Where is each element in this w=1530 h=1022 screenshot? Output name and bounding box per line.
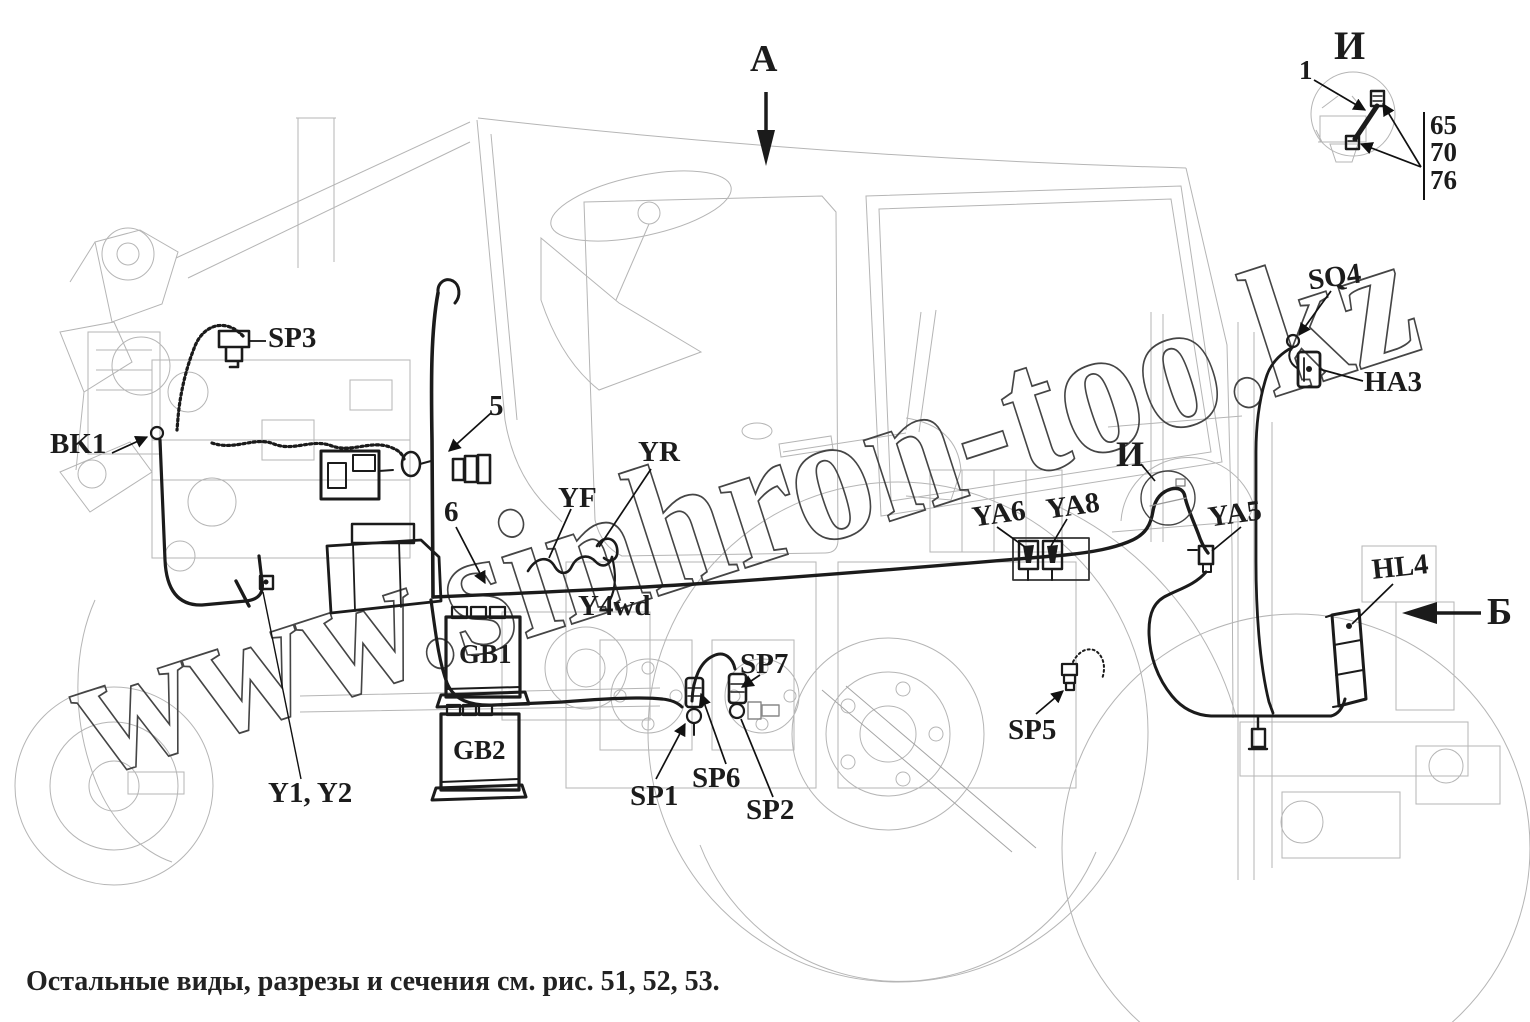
label-sp6: SP6 [692,764,740,793]
label-sp1: SP1 [630,782,678,811]
label-sq4: SQ4 [1306,259,1363,295]
detail-i-harness [1346,91,1384,149]
relay-box [321,451,393,499]
hl4-taillight [1326,610,1366,707]
label-6: 6 [444,498,459,527]
diagram-canvas: www.sinhron-too.kz [0,0,1530,1022]
label-y1-y2: Y1, Y2 [268,779,352,808]
label-yr: YR [638,438,680,467]
connector-oval [402,452,420,476]
sp7-sp2-sensors [729,674,779,719]
detail-ref-76: 76 [1430,167,1457,194]
label-sp3: SP3 [268,324,316,353]
detail-title: И [1334,26,1365,66]
label-sp2: SP2 [746,796,794,825]
figure-caption: Остальные виды, разрезы и сечения см. ри… [26,966,720,998]
label-ya5: YA5 [1206,496,1263,532]
detail-ref-70: 70 [1430,139,1457,166]
view-arrow-b [1402,602,1481,624]
detail-callout-1: 1 [1299,57,1313,84]
sp3-sensor [177,325,249,430]
view-label-b: Б [1487,593,1512,631]
label-y4wd: Y4wd [578,592,651,621]
label-yf: YF [558,484,597,513]
view-label-a: А [750,40,777,78]
label-5: 5 [489,392,504,421]
label-gb2: GB2 [453,737,506,764]
label-section-i: И [1116,436,1144,472]
detail-ref-65: 65 [1430,112,1457,139]
label-hl4: HL4 [1371,550,1430,585]
ya5-valve [1188,546,1213,572]
label-bk1: BK1 [50,430,106,459]
barrel-connector [453,455,490,483]
sp5-sensor [1062,649,1104,690]
label-gb1: GB1 [459,641,512,668]
bk1-sensor [151,427,163,439]
label-sp7: SP7 [740,650,788,679]
label-ha3: HA3 [1364,368,1422,397]
label-ya8: YA8 [1044,488,1101,524]
view-arrow-a [757,92,775,166]
label-ya6: YA6 [970,496,1027,532]
label-sp5: SP5 [1008,716,1056,745]
drawing-sheet: www.sinhron-too.kz [0,0,1530,1022]
